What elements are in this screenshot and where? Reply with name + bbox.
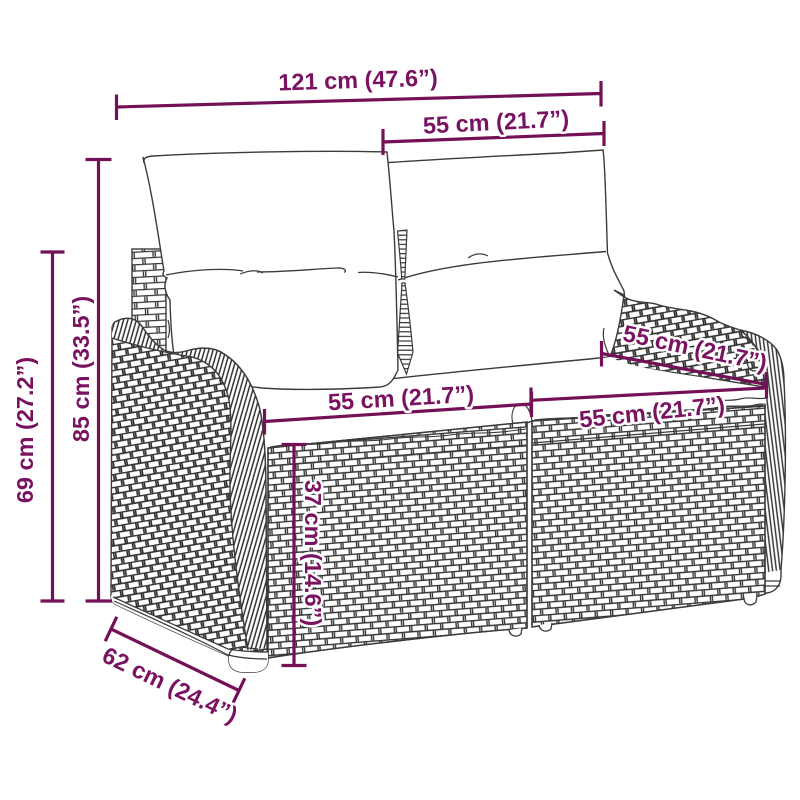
svg-text:121 cm (47.6”): 121 cm (47.6”) — [278, 65, 438, 96]
svg-text:69 cm (27.2”): 69 cm (27.2”) — [12, 357, 38, 503]
svg-text:62 cm (24.4”): 62 cm (24.4”) — [98, 642, 241, 728]
svg-text:37 cm (14.6”): 37 cm (14.6”) — [300, 480, 326, 626]
svg-text:85 cm (33.5”): 85 cm (33.5”) — [68, 296, 94, 442]
svg-text:55 cm (21.7”): 55 cm (21.7”) — [422, 105, 569, 138]
